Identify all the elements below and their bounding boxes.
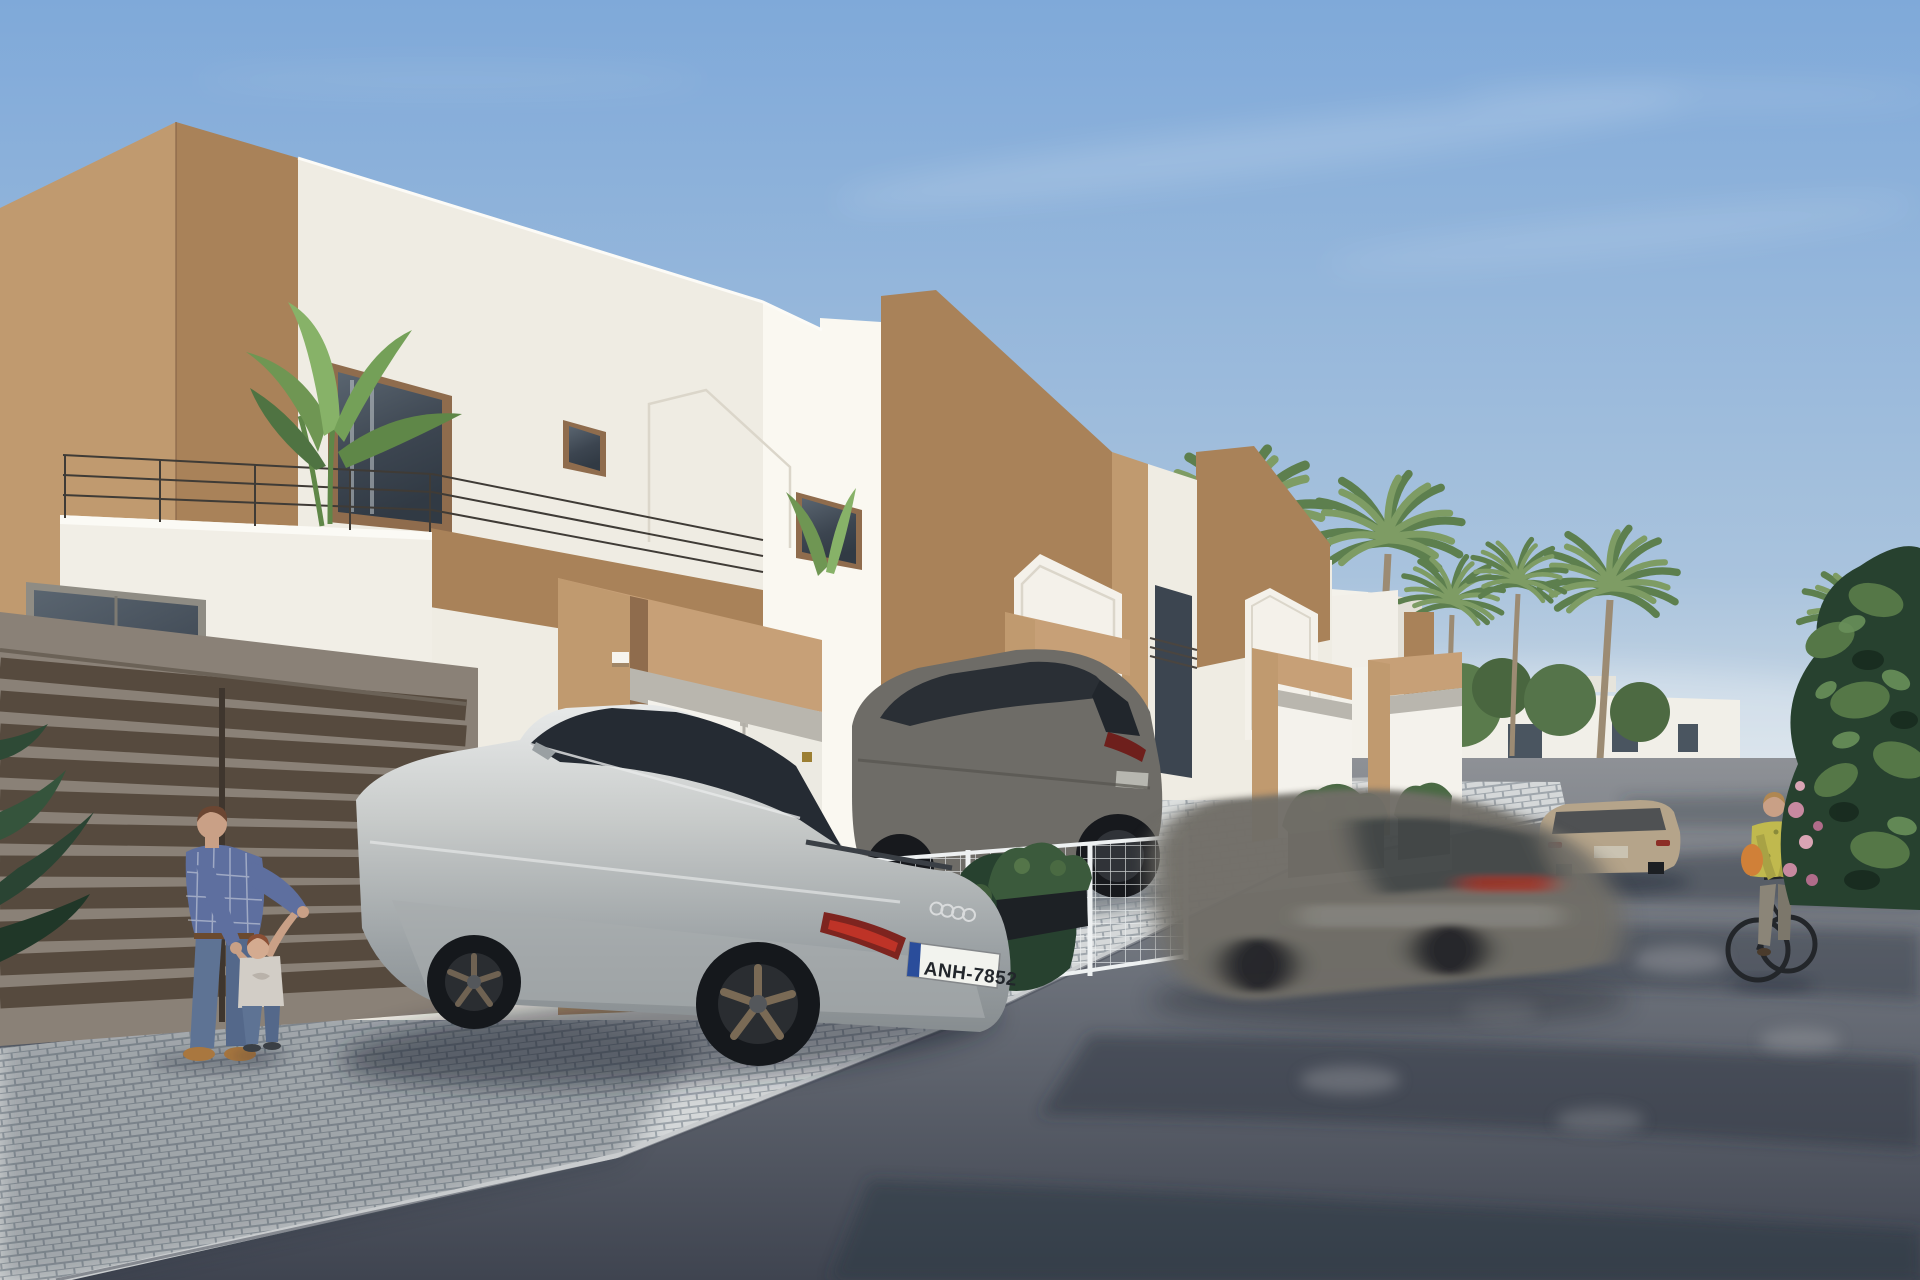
- taillight: [1656, 840, 1670, 846]
- wheel-front: [427, 935, 521, 1029]
- shoe: [263, 1042, 281, 1050]
- shoulder-bag: [1741, 844, 1763, 876]
- architectural-render: ANH-7852: [0, 0, 1920, 1280]
- cast-shadow: [1730, 977, 1814, 993]
- window: [1155, 585, 1192, 778]
- hand: [297, 906, 309, 918]
- door-number-plaque: [802, 752, 812, 762]
- cast-shadow: [230, 1050, 290, 1062]
- blurred-taillight: [1462, 876, 1554, 892]
- t-shirt: [238, 956, 284, 1008]
- shoe: [183, 1047, 215, 1061]
- shoe: [1757, 948, 1771, 956]
- wheel: [1218, 937, 1298, 993]
- plate: [1594, 846, 1628, 858]
- shoe: [243, 1044, 261, 1052]
- render-stage: ANH-7852: [0, 0, 1920, 1280]
- wheel: [1648, 862, 1664, 874]
- rear-window: [1552, 808, 1666, 834]
- wheel: [1410, 924, 1490, 976]
- wheel-rear: [696, 942, 820, 1066]
- wall-lamp: [612, 652, 629, 667]
